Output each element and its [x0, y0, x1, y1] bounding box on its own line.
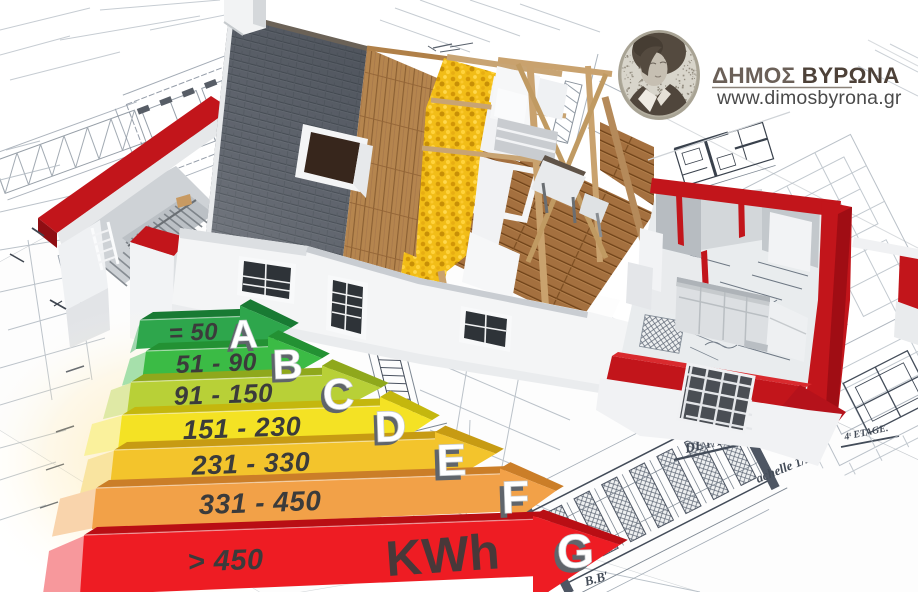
svg-text:www.dimosbyrona.gr: www.dimosbyrona.gr	[716, 87, 902, 109]
svg-text:B: B	[272, 340, 304, 388]
svg-text:ΔΗΜΟΣ ΒΥΡΩΝΑ: ΔΗΜΟΣ ΒΥΡΩΝΑ	[712, 63, 900, 88]
svg-text:D: D	[374, 402, 407, 452]
svg-text:331 - 450: 331 - 450	[198, 485, 322, 520]
svg-text:F: F	[500, 470, 530, 523]
svg-text:G: G	[556, 525, 595, 579]
svg-text:E: E	[436, 434, 468, 486]
svg-text:151 - 230: 151 - 230	[182, 411, 302, 445]
svg-text:51 - 90: 51 - 90	[175, 348, 257, 379]
svg-text:231 - 330: 231 - 330	[190, 447, 311, 481]
svg-text:= 50: = 50	[168, 318, 218, 347]
svg-text:C: C	[322, 370, 355, 420]
svg-text:91 - 150: 91 - 150	[173, 377, 273, 410]
svg-text:> 450: > 450	[187, 544, 264, 579]
svg-text:KWh: KWh	[384, 523, 501, 587]
